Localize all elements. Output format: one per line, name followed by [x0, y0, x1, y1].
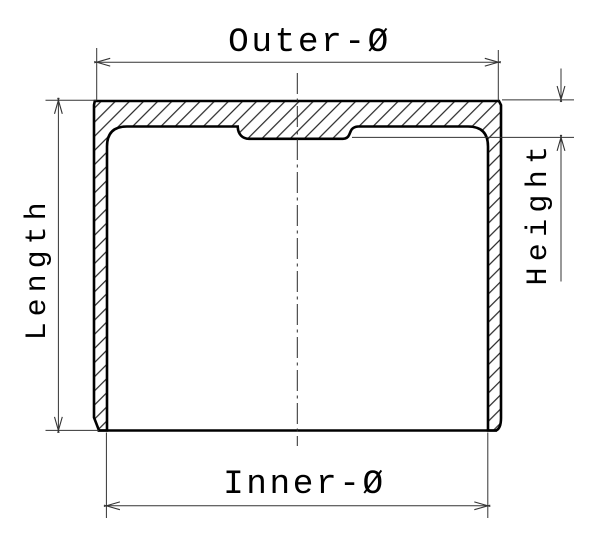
svg-text:Length: Length — [21, 196, 55, 340]
svg-text:Inner-Ø: Inner-Ø — [223, 465, 386, 504]
svg-text:Height: Height — [522, 140, 556, 286]
svg-text:Outer-Ø: Outer-Ø — [228, 23, 391, 62]
